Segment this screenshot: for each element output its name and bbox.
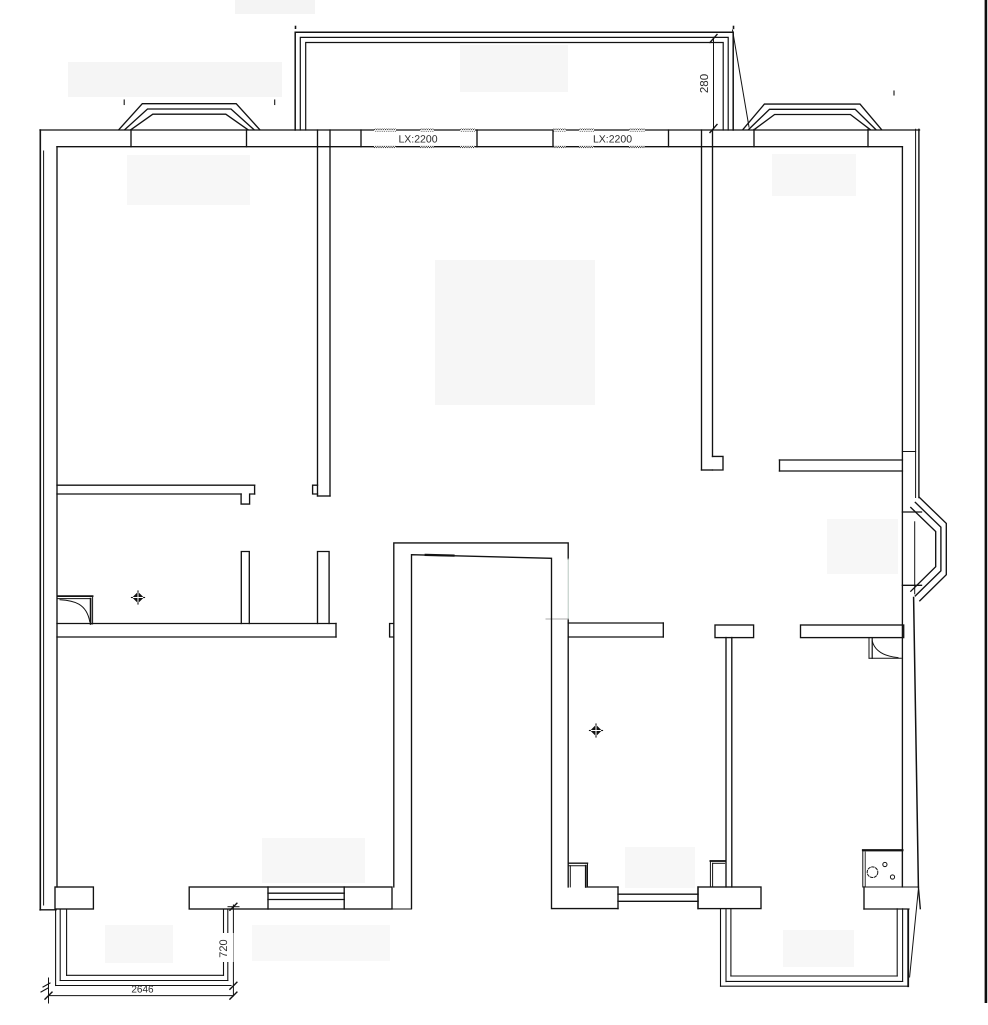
svg-text:LX:2200: LX:2200 [398, 133, 437, 145]
svg-text:2646: 2646 [131, 985, 154, 996]
svg-text:LX:2200: LX:2200 [593, 133, 632, 145]
svg-text:280: 280 [699, 74, 711, 93]
svg-text:720: 720 [218, 939, 230, 957]
